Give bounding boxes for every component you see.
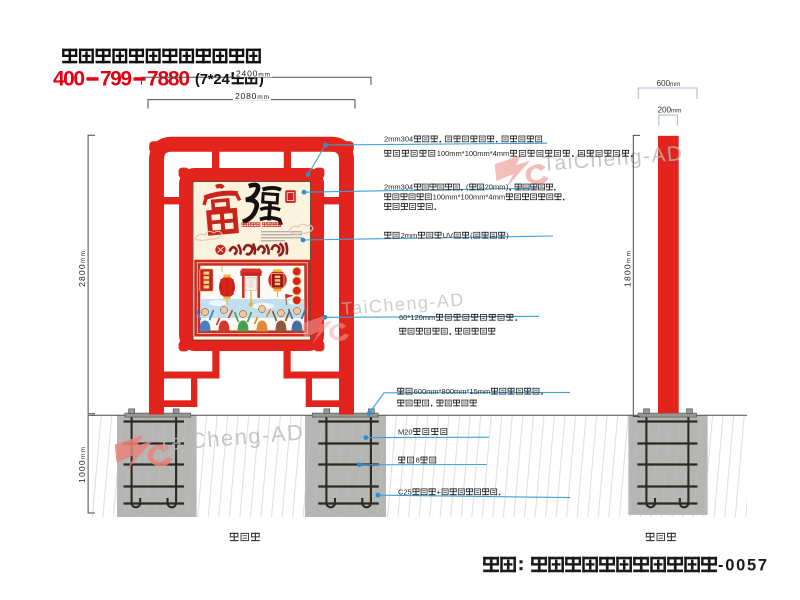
svg-text:C25: C25	[398, 488, 412, 497]
svg-text:2mm304: 2mm304	[384, 183, 413, 192]
svg-text:2mm304: 2mm304	[384, 135, 413, 144]
svg-text:20mm: 20mm	[485, 183, 506, 192]
svg-text:8: 8	[416, 456, 420, 465]
svg-text:UV: UV	[443, 231, 453, 240]
svg-text:600mm: 600mm	[657, 79, 681, 88]
svg-text:100mm*100mm*4mm: 100mm*100mm*4mm	[433, 193, 506, 202]
svg-text:-0057: -0057	[718, 556, 767, 574]
svg-text:7880: 7880	[147, 68, 190, 91]
svg-text:2mm: 2mm	[401, 231, 418, 240]
svg-text:100mm*100mm*4mm: 100mm*100mm*4mm	[437, 149, 510, 158]
svg-text:60*120mm: 60*120mm	[399, 313, 435, 322]
svg-text:200mm: 200mm	[658, 106, 682, 115]
svg-text:M20: M20	[398, 427, 413, 436]
svg-text:+: +	[437, 488, 442, 497]
svg-text:(7*24: (7*24	[195, 72, 230, 88]
svg-text:400: 400	[53, 68, 85, 91]
svg-text:600mm*800mm*15mm: 600mm*800mm*15mm	[414, 387, 491, 396]
svg-text:799: 799	[100, 68, 132, 91]
